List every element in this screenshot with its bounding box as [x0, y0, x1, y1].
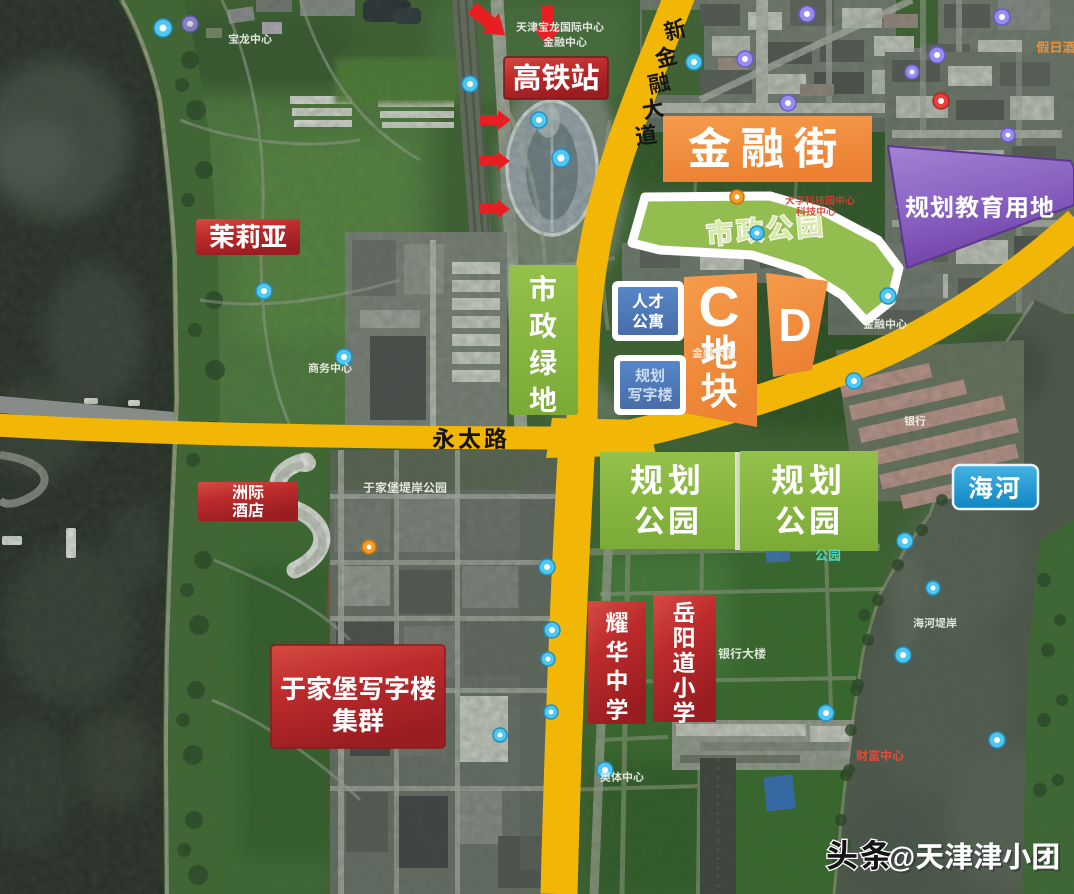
svg-text:市: 市 [529, 268, 557, 308]
svg-text:写字楼: 写字楼 [627, 384, 672, 405]
svg-text:金融中心: 金融中心 [543, 34, 587, 50]
svg-text:金融中心: 金融中心 [863, 316, 907, 332]
svg-text:规划教育用地: 规划教育用地 [905, 188, 1055, 223]
svg-text:海河: 海河 [968, 469, 1022, 505]
svg-text:财富中心: 财富中心 [856, 747, 904, 764]
svg-text:@天津津小团: @天津津小团 [887, 834, 1060, 876]
svg-text:海河堤岸: 海河堤岸 [913, 615, 957, 631]
svg-text:规划: 规划 [771, 454, 847, 502]
svg-text:科技中心: 科技中心 [796, 203, 836, 218]
svg-text:茉莉亚: 茉莉亚 [209, 217, 287, 254]
svg-text:天津宝龙国际中心: 天津宝龙国际中心 [516, 19, 604, 35]
svg-text:银行大楼: 银行大楼 [718, 645, 766, 662]
svg-text:金融街: 金融街 [688, 113, 847, 177]
svg-text:公园: 公园 [634, 496, 702, 541]
svg-text:政: 政 [529, 305, 557, 345]
svg-text:假日酒: 假日酒 [1036, 37, 1074, 56]
svg-text:学: 学 [673, 694, 696, 728]
svg-text:酒店: 酒店 [232, 497, 264, 521]
svg-text:公寓: 公寓 [632, 308, 664, 332]
svg-text:绿: 绿 [529, 342, 557, 382]
svg-text:宝龙中心: 宝龙中心 [228, 31, 272, 47]
svg-text:头条: 头条 [826, 831, 894, 877]
svg-text:规划: 规划 [630, 454, 706, 502]
svg-text:永太路: 永太路 [432, 420, 510, 454]
svg-text:银行: 银行 [904, 413, 926, 429]
svg-text:学: 学 [606, 691, 629, 725]
svg-text:块: 块 [701, 361, 738, 415]
svg-text:公园: 公园 [775, 496, 843, 541]
svg-text:集群: 集群 [332, 701, 384, 738]
svg-text:地: 地 [529, 379, 557, 419]
svg-text:道: 道 [633, 117, 659, 152]
svg-text:公园: 公园 [815, 545, 841, 564]
svg-text:高铁站: 高铁站 [512, 55, 599, 97]
svg-text:规划: 规划 [635, 365, 665, 386]
svg-text:商务中心: 商务中心 [308, 360, 352, 376]
svg-text:于家堡堤岸公园: 于家堡堤岸公园 [363, 479, 447, 496]
svg-text:奥体中心: 奥体中心 [600, 769, 644, 785]
svg-text:金融大厦: 金融大厦 [692, 345, 736, 361]
svg-text:D: D [778, 289, 811, 355]
